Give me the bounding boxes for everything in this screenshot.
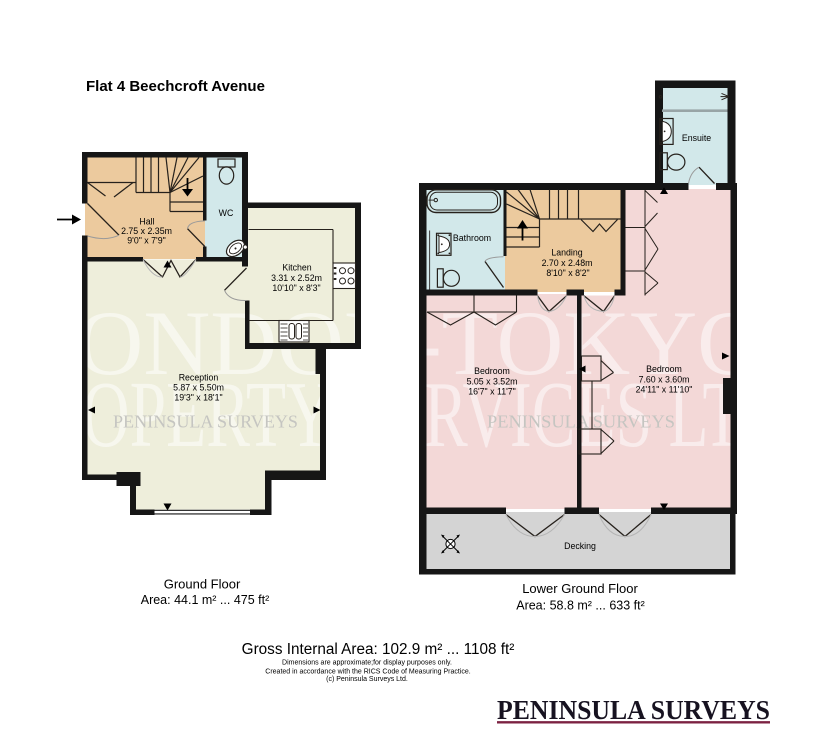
svg-text:Hall: Hall (139, 216, 154, 226)
svg-text:5.87 x 5.50m: 5.87 x 5.50m (173, 383, 224, 393)
svg-text:Decking: Decking (564, 541, 596, 551)
svg-text:3.31 x 2.52m: 3.31 x 2.52m (271, 273, 322, 283)
svg-text:5.05 x 3.52m: 5.05 x 3.52m (467, 376, 518, 386)
svg-text:Landing: Landing (551, 248, 582, 258)
svg-text:2.70 x 2.48m: 2.70 x 2.48m (542, 258, 593, 268)
svg-text:Dimensions are approximate;for: Dimensions are approximate;for display p… (282, 659, 452, 666)
svg-text:7.60 x 3.60m: 7.60 x 3.60m (639, 374, 690, 384)
svg-text:Bedroom: Bedroom (646, 364, 682, 374)
svg-text:Ground Floor: Ground Floor (164, 577, 241, 592)
svg-text:Created in accordance with the: Created in accordance with the RICS Code… (265, 669, 470, 676)
svg-text:PENINSULA SURVEYS: PENINSULA SURVEYS (113, 412, 298, 432)
svg-text:19'3" x 18'1": 19'3" x 18'1" (174, 392, 222, 402)
svg-text:(c) Peninsula Surveys Ltd.: (c) Peninsula Surveys Ltd. (326, 676, 408, 683)
svg-text:Area: 44.1 m² ... 475 ft²: Area: 44.1 m² ... 475 ft² (141, 593, 270, 607)
svg-text:Gross Internal Area: 102.9 m²: Gross Internal Area: 102.9 m² ... 1108 f… (242, 641, 515, 658)
svg-text:WC: WC (219, 208, 234, 218)
svg-text:8'10" x 8'2": 8'10" x 8'2" (546, 268, 589, 278)
svg-text:Area: 58.8 m² ... 633 ft²: Area: 58.8 m² ... 633 ft² (516, 598, 645, 612)
svg-text:Bedroom: Bedroom (474, 366, 510, 376)
svg-text:16'7" x 11'7": 16'7" x 11'7" (468, 387, 516, 397)
svg-text:Kitchen: Kitchen (282, 263, 311, 273)
svg-text:24'11" x 11'10": 24'11" x 11'10" (636, 385, 693, 395)
svg-text:9'0" x 7'9": 9'0" x 7'9" (127, 235, 165, 245)
svg-text:Bathroom: Bathroom (453, 233, 491, 243)
svg-text:Flat 4 Beechcroft Avenue: Flat 4 Beechcroft Avenue (86, 78, 265, 95)
svg-text:10'10" x 8'3": 10'10" x 8'3" (272, 283, 320, 293)
svg-text:PENINSULA SURVEYS: PENINSULA SURVEYS (497, 695, 770, 725)
svg-text:Reception: Reception (179, 373, 219, 383)
svg-text:Lower Ground Floor: Lower Ground Floor (522, 581, 638, 596)
svg-text:Ensuite: Ensuite (682, 133, 711, 143)
